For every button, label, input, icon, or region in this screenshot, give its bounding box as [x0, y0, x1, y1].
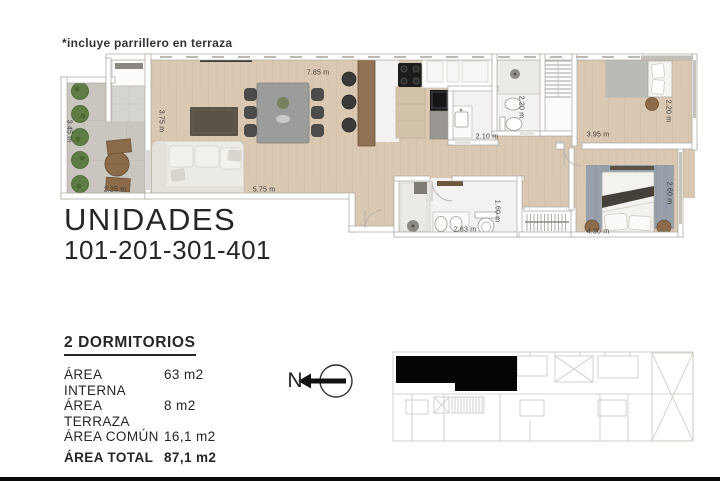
dimension-label: 2.60 m	[666, 182, 673, 205]
dimension-label: 2.83 m	[454, 227, 477, 234]
unit-numbers: 101-201-301-401	[64, 236, 271, 264]
bathroom-small	[452, 106, 472, 138]
area-label: ÁREA TERRAZA	[64, 398, 164, 429]
dimension-label: 1.60 m	[494, 200, 501, 223]
side-table	[646, 98, 659, 111]
north-arrow-icon	[298, 365, 352, 397]
key-plan	[393, 352, 693, 441]
area-value: 16,1 m2	[164, 429, 216, 445]
sink	[455, 112, 468, 127]
bottom-border	[0, 477, 720, 481]
dimension-label: 3.45 m	[66, 120, 73, 143]
area-rows: ÁREA INTERNA 63 m2 ÁREA TERRAZA 8 m2 ÁRE…	[64, 367, 216, 465]
area-label: ÁREA COMÚN	[64, 429, 164, 445]
area-row: ÁREA COMÚN 16,1 m2	[64, 429, 216, 445]
north-label: N	[287, 369, 302, 393]
toilet	[506, 118, 522, 131]
dimension-label: 5.75 m	[253, 187, 276, 194]
dining-area	[244, 83, 324, 143]
rug	[190, 107, 238, 136]
floorplan-sheet: *incluye parrillero en terraza UNIDADES …	[0, 0, 720, 481]
page-title: UNIDADES	[64, 203, 271, 236]
area-label: ÁREA TOTAL	[64, 450, 164, 466]
unit-highlight	[396, 356, 517, 391]
bedrooms-heading: 2 DORMITORIOS	[64, 334, 196, 356]
area-value: 8 m2	[164, 398, 196, 429]
bench	[106, 139, 131, 154]
area-row: ÁREA INTERNA 63 m2	[64, 367, 216, 398]
dining-table	[257, 83, 309, 143]
area-value: 63 m2	[164, 367, 204, 398]
dimension-label: 3.95 m	[587, 132, 610, 139]
dimension-label: 2.20 m	[518, 96, 525, 119]
area-value: 87,1 m2	[164, 450, 216, 466]
area-total-row: ÁREA TOTAL 87,1 m2	[64, 450, 216, 466]
bedroom-2	[585, 165, 674, 234]
dimension-label: 2.20 m	[665, 100, 672, 123]
dimension-label: 2.25 m	[104, 187, 127, 194]
dimension-label: 2.10 m	[476, 134, 499, 141]
title-block: UNIDADES 101-201-301-401	[64, 203, 271, 265]
toilet	[478, 218, 494, 234]
bar-stools	[342, 72, 356, 132]
sink	[435, 217, 447, 232]
area-row: ÁREA TERRAZA 8 m2	[64, 398, 216, 429]
terrace-note: *incluye parrillero en terraza	[62, 36, 232, 50]
area-label: ÁREA INTERNA	[64, 367, 164, 398]
dimension-label: 3.75 m	[158, 110, 165, 133]
dimension-label: 7.85 m	[307, 70, 330, 77]
area-summary: 2 DORMITORIOS ÁREA INTERNA 63 m2 ÁREA TE…	[64, 334, 216, 465]
dimension-label: 4.30 m	[587, 229, 610, 236]
kitchen-island	[358, 60, 375, 146]
